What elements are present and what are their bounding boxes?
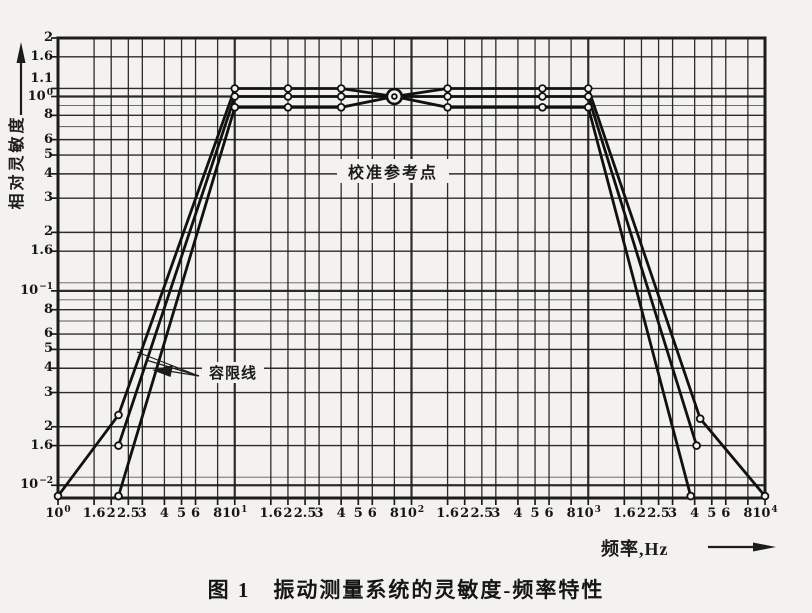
calibration-point-label: 校准参考点	[337, 159, 449, 183]
x-tick-label: 8	[567, 506, 576, 521]
y-tick-label: 100	[0, 89, 53, 106]
tick-base: 10	[222, 506, 240, 521]
data-point-nominal	[444, 93, 451, 100]
data-point-tolerance-upper	[585, 85, 592, 92]
data-point-tolerance-upper	[115, 412, 122, 419]
tolerance-line-label: 容限线	[202, 362, 264, 383]
y-tick-label: 2	[0, 30, 53, 45]
figure-caption: 图 1 振动测量系统的灵敏度-频率特性	[0, 574, 812, 604]
data-point-tolerance-upper	[762, 493, 769, 500]
data-point-nominal	[539, 93, 546, 100]
x-tick-label: 100	[45, 506, 70, 523]
x-tick-label: 5	[177, 506, 186, 521]
x-tick-label: 2	[637, 506, 646, 521]
x-tick-label: 1.6	[613, 506, 636, 521]
data-point-tolerance-upper	[444, 85, 451, 92]
x-tick-label: 102	[399, 506, 424, 523]
x-tick-label: 3	[315, 506, 324, 521]
tick-exponent: −1	[39, 282, 53, 292]
x-tick-label: 5	[531, 506, 540, 521]
tick-exponent: 4	[771, 505, 777, 515]
y-tick-label: 4	[0, 166, 53, 181]
data-point-tolerance-lower	[539, 104, 546, 111]
y-tick-label: 1.6	[0, 49, 53, 64]
data-point-tolerance-upper	[338, 85, 345, 92]
x-tick-label: 1.6	[83, 506, 106, 521]
data-point-nominal	[115, 442, 122, 449]
data-point-tolerance-lower	[285, 104, 292, 111]
calibration-marker-inner	[392, 94, 397, 99]
y-tick-label: 6	[0, 132, 53, 147]
x-tick-label: 5	[707, 506, 716, 521]
tick-exponent: 3	[595, 505, 601, 515]
data-point-nominal	[693, 442, 700, 449]
x-tick-label: 2	[283, 506, 292, 521]
tick-exponent: −2	[39, 476, 53, 486]
x-tick-label: 2.5	[647, 506, 670, 521]
tick-exponent: 0	[64, 505, 70, 515]
x-tick-label: 4	[690, 506, 699, 521]
data-point-tolerance-lower	[338, 104, 345, 111]
x-tick-label: 8	[743, 506, 752, 521]
y-tick-label: 6	[0, 326, 53, 341]
y-tick-label: 8	[0, 302, 53, 317]
x-tick-label: 2.5	[117, 506, 140, 521]
y-tick-label: 2	[0, 419, 53, 434]
x-tick-label: 1.6	[260, 506, 283, 521]
y-tick-label: 5	[0, 147, 53, 162]
y-tick-label: 3	[0, 190, 53, 205]
x-tick-label: 2	[107, 506, 116, 521]
x-tick-label: 4	[513, 506, 522, 521]
x-tick-label: 6	[368, 506, 377, 521]
tick-exponent: 0	[47, 88, 53, 98]
data-point-nominal	[231, 93, 238, 100]
data-point-tolerance-upper	[55, 493, 62, 500]
tick-base: 10	[752, 506, 770, 521]
sensitivity-frequency-chart: 相对灵敏度 校准参考点 容限线 频率,Hz 1001.622.534568101…	[0, 0, 812, 560]
scanned-figure-page: 相对灵敏度 校准参考点 容限线 频率,Hz 1001.622.534568101…	[0, 0, 812, 613]
y-tick-label: 10−1	[0, 283, 53, 300]
chart-canvas	[0, 0, 812, 560]
x-tick-label: 4	[160, 506, 169, 521]
x-tick-label: 101	[222, 506, 247, 523]
x-axis-arrow-head	[753, 543, 776, 552]
x-tick-label: 6	[721, 506, 730, 521]
y-tick-label: 1.1	[0, 71, 53, 86]
data-point-tolerance-upper	[697, 415, 704, 422]
data-point-tolerance-lower	[585, 104, 592, 111]
data-point-tolerance-upper	[539, 85, 546, 92]
y-tick-label: 8	[0, 107, 53, 122]
x-tick-label: 3	[138, 506, 147, 521]
x-tick-label: 1.6	[436, 506, 459, 521]
data-point-tolerance-lower	[687, 493, 694, 500]
y-tick-label: 1.6	[0, 438, 53, 453]
tick-base: 10	[45, 506, 63, 521]
x-tick-label: 2.5	[294, 506, 317, 521]
x-tick-label: 5	[354, 506, 363, 521]
data-point-nominal	[338, 93, 345, 100]
data-point-tolerance-upper	[231, 85, 238, 92]
curve-tolerance-lower	[119, 97, 691, 497]
x-tick-label: 6	[191, 506, 200, 521]
tick-exponent: 1	[241, 505, 247, 515]
x-tick-label: 103	[576, 506, 601, 523]
data-point-tolerance-lower	[444, 104, 451, 111]
tick-base: 10	[28, 89, 46, 104]
y-tick-label: 2	[0, 224, 53, 239]
y-tick-label: 5	[0, 341, 53, 356]
x-tick-label: 3	[668, 506, 677, 521]
tick-base: 10	[399, 506, 417, 521]
data-point-tolerance-lower	[231, 104, 238, 111]
tick-exponent: 2	[418, 505, 424, 515]
data-point-nominal	[585, 93, 592, 100]
x-tick-label: 2.5	[471, 506, 494, 521]
x-tick-label: 8	[213, 506, 222, 521]
x-tick-label: 8	[390, 506, 399, 521]
data-point-tolerance-upper	[285, 85, 292, 92]
x-tick-label: 2	[460, 506, 469, 521]
tick-base: 10	[20, 283, 38, 298]
x-tick-label: 104	[752, 506, 777, 523]
x-tick-label: 3	[491, 506, 500, 521]
x-tick-label: 4	[337, 506, 346, 521]
y-tick-label: 4	[0, 360, 53, 375]
x-axis-title: 频率,Hz	[601, 535, 669, 561]
tick-base: 10	[20, 477, 38, 492]
tick-base: 10	[576, 506, 594, 521]
y-tick-label: 1.6	[0, 243, 53, 258]
x-tick-label: 6	[545, 506, 554, 521]
y-tick-label: 10−2	[0, 477, 53, 494]
data-point-nominal	[285, 93, 292, 100]
data-point-tolerance-lower	[115, 493, 122, 500]
y-tick-label: 3	[0, 385, 53, 400]
